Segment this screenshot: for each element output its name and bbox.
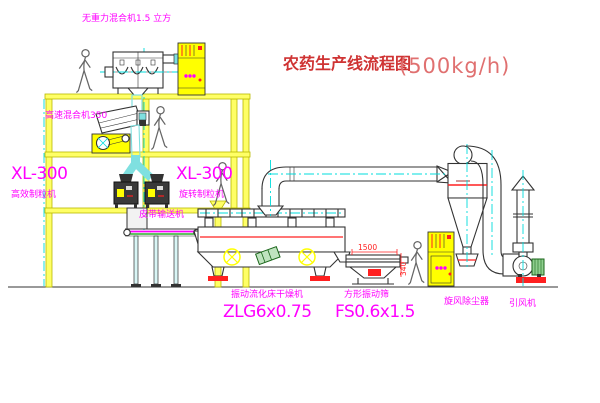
label-granulator-model-left: XL-300 bbox=[11, 164, 67, 184]
label-belt-conveyor: 皮带输送机 bbox=[139, 208, 184, 220]
label-screen-model: FS0.6x1.5 bbox=[335, 302, 415, 322]
diagram-title: 农药生产线流程图 bbox=[282, 54, 411, 73]
label-zero-gravity-mixer: 无重力混合机1.5 立方 bbox=[82, 12, 171, 24]
floor-slab-mid bbox=[45, 152, 250, 157]
diagram-title-capacity: (500kg/h) bbox=[399, 54, 510, 78]
label-dryer: 振动流化床干燥机 bbox=[231, 288, 303, 300]
screen-height-dimension: 340 bbox=[399, 261, 408, 276]
label-granulator-left: 高效制粒机 bbox=[11, 188, 56, 200]
cad-flow-diagram: 1500 340 无重力混合机1.5 立方 高速混合机350 XL-300 高效… bbox=[0, 0, 600, 403]
label-fan: 引风机 bbox=[509, 297, 536, 309]
belt-conveyor bbox=[124, 229, 200, 287]
exhaust-duct bbox=[258, 160, 460, 216]
label-cyclone: 旋风除尘器 bbox=[444, 295, 489, 307]
control-cabinet-ground bbox=[428, 232, 454, 286]
worker-figure-ground bbox=[408, 242, 424, 285]
diagram-svg: 1500 340 无重力混合机1.5 立方 高速混合机350 XL-300 高效… bbox=[0, 0, 600, 403]
screen-length-dimension: 1500 bbox=[358, 243, 377, 252]
zero-gravity-mixer bbox=[100, 52, 180, 115]
floor-slab-top bbox=[45, 94, 250, 99]
label-granulator-model-right: XL-300 bbox=[176, 164, 232, 184]
label-screen: 方形振动筛 bbox=[344, 288, 389, 300]
label-dryer-model: ZLG6x0.75 bbox=[223, 302, 312, 322]
worker-figure-floor2 bbox=[151, 107, 167, 150]
granulator-left-unit bbox=[114, 174, 138, 208]
label-high-speed-mixer: 高速混合机350 bbox=[45, 109, 107, 121]
label-granulator-right: 旋转制粒机 bbox=[179, 188, 224, 200]
induced-draft-fan bbox=[503, 254, 546, 283]
worker-figure-top bbox=[76, 50, 92, 93]
vibrating-screen: 1500 340 bbox=[346, 243, 408, 284]
control-cabinet-top bbox=[178, 43, 205, 95]
